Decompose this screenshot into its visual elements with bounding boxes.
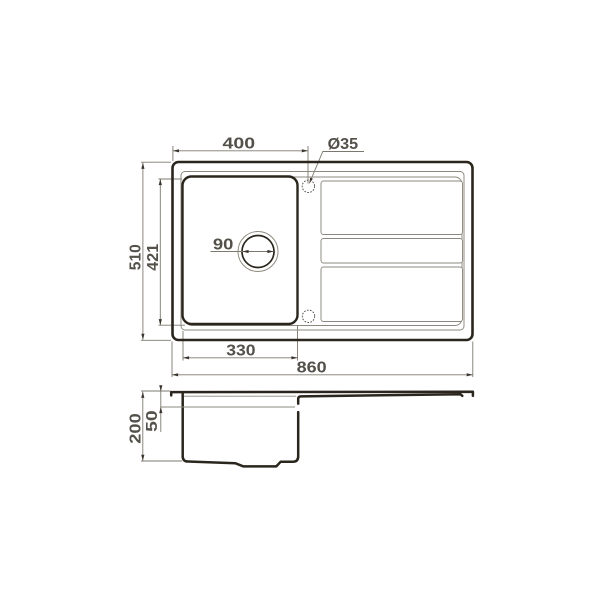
svg-text:860: 860 bbox=[297, 360, 327, 377]
svg-text:50: 50 bbox=[144, 410, 161, 432]
svg-text:330: 330 bbox=[226, 343, 255, 360]
svg-text:510: 510 bbox=[128, 244, 145, 270]
svg-text:Ø35: Ø35 bbox=[328, 136, 359, 153]
svg-text:400: 400 bbox=[223, 136, 256, 153]
svg-text:90: 90 bbox=[213, 236, 234, 253]
svg-text:421: 421 bbox=[145, 243, 162, 270]
svg-text:200: 200 bbox=[127, 413, 144, 444]
